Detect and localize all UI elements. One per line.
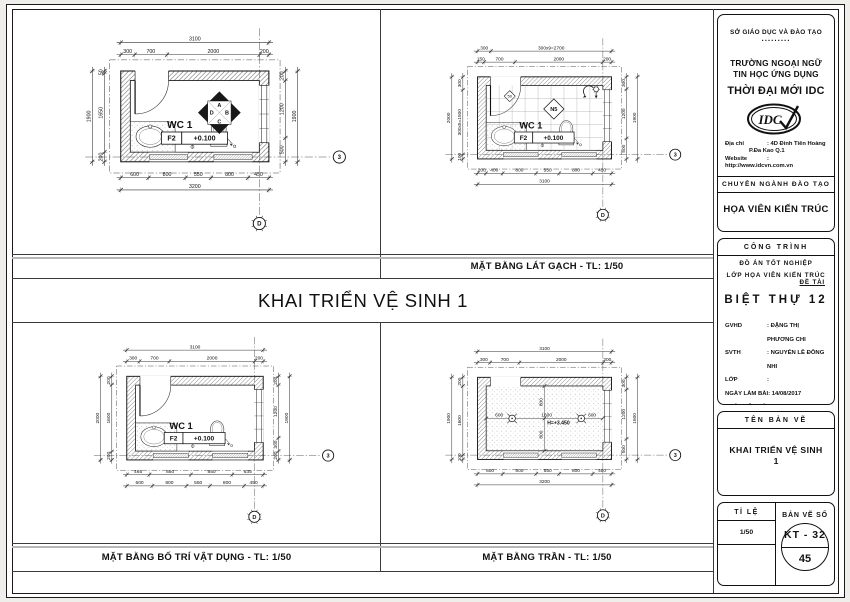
svg-text:550: 550 (194, 172, 203, 178)
svg-text:200: 200 (280, 71, 286, 80)
svg-text:100: 100 (457, 453, 463, 461)
svg-text:850: 850 (207, 469, 215, 475)
svg-text:3200: 3200 (189, 184, 201, 190)
svg-text:450: 450 (250, 480, 258, 486)
grid-bubble: 3 (333, 151, 345, 163)
svg-text:+0.100: +0.100 (194, 135, 216, 143)
project-field: LỚP: (725, 374, 827, 388)
project-field: SVTH: NGUYỄN LÊ ĐÔNG NHI (725, 347, 827, 374)
grid-bubble: 3 (322, 450, 333, 461)
svg-text:450: 450 (598, 468, 606, 474)
tile-note-marker: N5 (544, 99, 564, 119)
window-sill (503, 153, 538, 157)
svg-text:300: 300 (621, 379, 627, 387)
school-brand: THỜI ĐẠI MỚI IDC (718, 85, 834, 97)
project-fields: GVHD: ĐẶNG THỊ PHƯƠNG CHISVTH: NGUYỄN LÊ… (718, 320, 834, 405)
svg-text:3200: 3200 (539, 479, 550, 485)
caption-fixture-plan: MẶT BẰNG BỐ TRÍ VẬT DỤNG - TL: 1/50 (13, 545, 380, 570)
website-row: Website: http://www.idcvn.com.vn (718, 156, 834, 171)
tile-start-marker: 50 (504, 91, 515, 102)
svg-text:2000: 2000 (446, 112, 452, 123)
idc-logo-icon: IDC (744, 100, 808, 138)
svg-text:700: 700 (496, 56, 504, 62)
svg-text:700: 700 (150, 356, 158, 362)
department-header: CHUYÊN NGÀNH ĐÀO TẠO (718, 176, 834, 193)
svg-text:1600: 1600 (632, 413, 638, 424)
svg-text:800: 800 (225, 172, 234, 178)
svg-text:850: 850 (166, 469, 174, 475)
svg-text:D: D (210, 111, 214, 117)
grid-bubble: D (596, 508, 610, 522)
school-name-line2: TIN HỌC ỨNG DỤNG (718, 69, 834, 80)
grid-bubble: D (247, 510, 261, 524)
svg-text:F2: F2 (170, 436, 178, 443)
svg-text:2000: 2000 (553, 56, 564, 62)
sink-faucet (152, 426, 155, 429)
school-name-line1: TRƯỜNG NGOẠI NGỮ (718, 58, 834, 69)
plan-fixture-layout: WC 1F2+0.1003100300700200020046585085063… (14, 322, 380, 543)
svg-text:50: 50 (507, 94, 512, 99)
svg-text:800: 800 (572, 468, 580, 474)
svg-text:3: 3 (338, 154, 342, 161)
project-field: NGÀY LÀM BÀI: 14/08/2017 (725, 388, 827, 402)
door-swing (140, 385, 171, 416)
svg-text:200: 200 (255, 356, 263, 362)
svg-text:F2: F2 (167, 135, 175, 143)
window-sill (562, 153, 597, 157)
drawing-title-header: TÊN BẢN VẼ (718, 412, 834, 429)
svg-text:D: D (257, 221, 262, 228)
scale-value: 1/50 (718, 521, 775, 545)
svg-text:WC 1: WC 1 (169, 421, 192, 431)
svg-text:200: 200 (273, 376, 279, 384)
svg-text:200: 200 (273, 451, 279, 459)
svg-text:800: 800 (572, 168, 580, 174)
svg-text:1200: 1200 (280, 103, 286, 115)
project-line2: LỚP HỌA VIÊN KIẾN TRÚC (718, 272, 834, 280)
svg-text:300: 300 (123, 49, 132, 55)
svg-text:300: 300 (457, 79, 463, 87)
sheet-number-bubble: KT - 32 45 (781, 523, 829, 571)
floor-drain (233, 145, 235, 147)
svg-text:1200: 1200 (621, 409, 627, 420)
svg-text:200: 200 (478, 168, 486, 174)
svg-text:3100: 3100 (190, 344, 201, 350)
drawing-sheet: WC 1F2+0.100ABCD310030070020002006008005… (0, 0, 850, 602)
window-sill (213, 453, 248, 457)
drawing-title-line1: KHAI TRIỂN VỆ SINH (718, 445, 834, 455)
svg-text:300x9=2700: 300x9=2700 (538, 45, 565, 51)
scale-cell: TỈ LỆ 1/50 (718, 503, 776, 585)
project-topic-label: ĐỀ TÀI (718, 279, 834, 286)
svg-text:2000: 2000 (207, 356, 218, 362)
svg-text:3100: 3100 (539, 179, 550, 185)
elevation-marker: ABCD (198, 91, 241, 134)
svg-text:550: 550 (544, 468, 552, 474)
title-block-divider (713, 9, 714, 593)
svg-text:800: 800 (163, 172, 172, 178)
address-row2: P.Đa Kao Q.1 (718, 148, 834, 155)
svg-text:D: D (252, 515, 256, 521)
svg-text:+0.100: +0.100 (194, 436, 215, 443)
grid-bubble: D (596, 208, 610, 222)
svg-text:1600: 1600 (541, 413, 552, 419)
svg-text:800: 800 (515, 168, 523, 174)
svg-text:600: 600 (136, 480, 144, 486)
svg-text:450: 450 (254, 172, 263, 178)
svg-text:200: 200 (260, 49, 269, 55)
svg-text:1900: 1900 (284, 412, 290, 423)
svg-text:50: 50 (99, 69, 105, 75)
title-block-scale-number: TỈ LỆ 1/50 BẢN VẼ SỐ KT - 32 45 (717, 502, 835, 586)
svg-text:300x5=1500: 300x5=1500 (457, 109, 463, 136)
address-row: Địa chỉ: 4D Đinh Tiên Hoàng (718, 141, 834, 148)
svg-text:B: B (225, 111, 229, 117)
svg-text:WC 1: WC 1 (519, 120, 542, 130)
svg-text:200: 200 (457, 377, 463, 385)
svg-text:550: 550 (544, 168, 552, 174)
svg-text:500: 500 (280, 145, 286, 154)
svg-text:2000: 2000 (207, 49, 219, 55)
svg-text:3: 3 (674, 153, 677, 159)
svg-text:450: 450 (598, 168, 606, 174)
svg-text:800: 800 (223, 480, 231, 486)
floor-drain (231, 444, 233, 446)
svg-text:2000: 2000 (556, 357, 567, 363)
sheet-number-label: BẢN VẼ SỐ (776, 512, 834, 519)
sheet-number-cell: BẢN VẼ SỐ KT - 32 45 (776, 503, 834, 585)
sink-faucet (503, 126, 506, 129)
svg-text:1900: 1900 (446, 413, 452, 424)
svg-text:1600: 1600 (457, 415, 463, 426)
svg-text:600: 600 (495, 413, 503, 419)
plan-floor-tiling: WC 1F2+0.100N550300300x9=270015070020002… (381, 10, 712, 254)
svg-text:500: 500 (621, 144, 627, 152)
svg-text:635: 635 (244, 469, 252, 475)
svg-text:600: 600 (486, 468, 494, 474)
caption-band2-bottom-line (12, 571, 713, 572)
svg-text:500: 500 (621, 445, 627, 453)
sink-basin (136, 126, 164, 147)
svg-text:WC 1: WC 1 (167, 120, 193, 131)
project-line1: ĐỒ ÁN TỐT NGHIỆP (718, 260, 834, 268)
drawing-title-line2: 1 (718, 456, 834, 466)
grid-bubble: D (252, 216, 267, 231)
svg-text:200: 200 (106, 451, 112, 459)
svg-text:465: 465 (134, 469, 142, 475)
svg-text:200: 200 (603, 357, 611, 363)
svg-text:800: 800 (539, 430, 545, 438)
svg-text:150: 150 (477, 56, 485, 62)
grid-bubble: 3 (670, 450, 681, 461)
caption-band2-top-line (12, 543, 713, 544)
caption-ceiling-plan: MẶT BẰNG TRẦN - TL: 1/50 (381, 545, 713, 570)
project-name: BIỆT THỰ 12 (718, 294, 834, 306)
svg-text:300: 300 (273, 440, 279, 448)
svg-text:300: 300 (129, 356, 137, 362)
svg-text:800: 800 (515, 468, 523, 474)
title-block-organization: SỞ GIÁO DỤC VÀ ĐÀO TẠO ......... TRƯỜNG … (717, 14, 835, 232)
svg-text:800: 800 (165, 480, 173, 486)
svg-text:1200: 1200 (621, 108, 627, 119)
svg-text:1200: 1200 (273, 406, 279, 417)
project-header: CÔNG TRÌNH (718, 239, 834, 256)
sheet-section-title: KHAI TRIỂN VỆ SINH 1 (13, 280, 713, 322)
project-field: GVHD: ĐẶNG THỊ PHƯƠNG CHI (725, 320, 827, 347)
svg-text:A: A (217, 103, 221, 109)
window-sill (214, 155, 252, 160)
svg-text:3100: 3100 (539, 346, 550, 352)
svg-text:N5: N5 (550, 107, 557, 113)
svg-text:C: C (217, 119, 221, 125)
svg-text:200: 200 (99, 153, 105, 162)
sink-faucet (149, 125, 152, 128)
svg-text:200: 200 (106, 376, 112, 384)
window-sill (149, 155, 187, 160)
svg-text:1900: 1900 (86, 110, 92, 122)
svg-text:1900: 1900 (292, 110, 298, 122)
svg-text:400: 400 (490, 168, 498, 174)
sheet-number-value: 45 (782, 548, 828, 571)
svg-text:200: 200 (603, 56, 611, 62)
caption-band-bottom-line (12, 278, 713, 279)
svg-text:600: 600 (130, 172, 139, 178)
svg-text:300: 300 (480, 357, 488, 363)
title-block-drawing-title: TÊN BẢN VẼ KHAI TRIỂN VỆ SINH 1 (717, 411, 835, 496)
sheet-number-code: KT - 32 (782, 524, 828, 548)
window-sill (562, 453, 597, 457)
svg-text:600: 600 (588, 413, 596, 419)
plan-key-elevation-marker: WC 1F2+0.100ABCD310030070020002006008005… (14, 10, 380, 254)
sink-basin (491, 126, 517, 145)
svg-text:D: D (601, 513, 605, 519)
agency-dots: ......... (718, 36, 834, 42)
svg-text:700: 700 (146, 49, 155, 55)
svg-text:100: 100 (457, 152, 463, 160)
svg-text:3: 3 (327, 454, 330, 460)
shower-symbol (583, 86, 600, 99)
door-swing (491, 85, 521, 115)
window-sill (153, 453, 188, 457)
svg-text:300: 300 (621, 79, 627, 87)
logo-idc-text: IDC (757, 112, 781, 127)
window-sill (503, 453, 538, 457)
svg-text:300: 300 (480, 45, 488, 51)
project-field: NGÀY NỘP BÀI: (725, 401, 827, 405)
svg-text:+0.100: +0.100 (543, 135, 563, 142)
title-block-project: CÔNG TRÌNH ĐỒ ÁN TỐT NGHIỆP LỚP HỌA VIÊN… (717, 238, 835, 405)
svg-text:3: 3 (674, 453, 677, 459)
svg-text:1650: 1650 (99, 107, 105, 119)
svg-text:H=+3.450: H=+3.450 (547, 421, 570, 427)
department-name: HỌA VIÊN KIẾN TRÚC (718, 193, 834, 215)
svg-text:1600: 1600 (106, 412, 112, 423)
svg-text:800: 800 (539, 398, 545, 406)
svg-text:1900: 1900 (632, 112, 638, 123)
svg-text:550: 550 (194, 480, 202, 486)
sink-basin (141, 427, 167, 447)
svg-text:D: D (601, 213, 605, 219)
svg-text:F2: F2 (520, 135, 528, 142)
plan-ceiling: 6001600600800800H=+3.4503100300700200020… (381, 322, 712, 543)
caption-tiling-plan: MẶT BẰNG LÁT GẠCH - TL: 1/50 (381, 255, 713, 278)
floor-drain (579, 144, 581, 146)
grid-bubble: 3 (670, 149, 681, 160)
svg-text:2000: 2000 (95, 412, 101, 423)
svg-text:700: 700 (501, 357, 509, 363)
scale-label: TỈ LỆ (718, 503, 775, 521)
door-swing (135, 81, 168, 114)
svg-text:3100: 3100 (189, 37, 201, 43)
